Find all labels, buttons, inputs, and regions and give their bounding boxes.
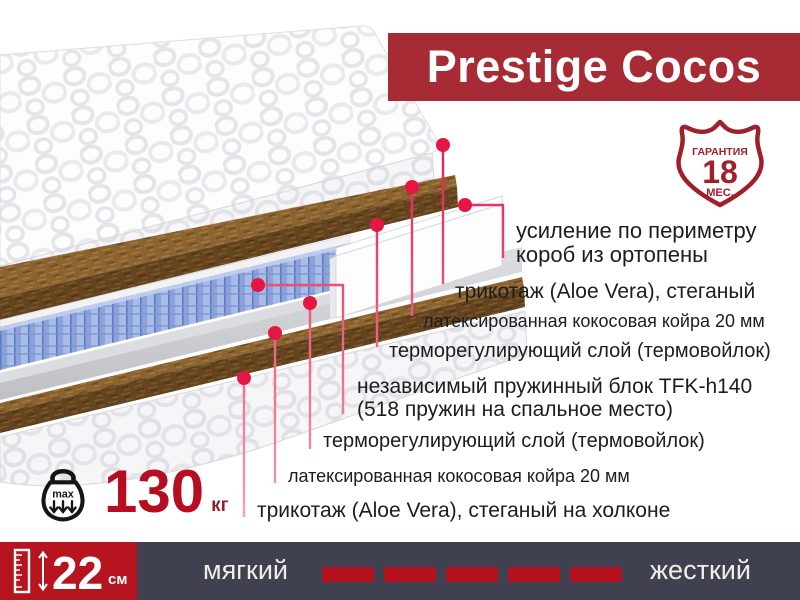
firmness-block [508,567,560,582]
annotation-coir-bottom: латексированная кокосовая койра 20 мм [288,466,630,487]
annotation-coir-top: латексированная кокосовая койра 20 мм [423,311,765,332]
firmness-scale [322,567,632,585]
annotation-felt-1: терморегулирующий слой (термовойлок) [389,340,771,363]
firmness-block [384,567,436,582]
infographic: Prestige Cocos ГАРАНТИЯ 18 МЕС. усиление… [0,0,800,600]
bottom-bar: 22 см мягкий жесткий [0,542,800,600]
annotation-springs: независимый пружинный блок TFK-h140 (518… [357,375,752,421]
max-load-unit: кг [211,495,228,517]
down-arrows-icon [50,501,75,512]
firmness-block [570,567,622,582]
max-load: max 130 кг [36,462,229,526]
firmness-block [322,567,374,582]
annotation-foam-box: усиление по периметру короб из ортопены [516,219,757,267]
title-banner: Prestige Cocos [388,33,800,101]
firmness-hard-label: жесткий [650,555,751,586]
badge-bottom-label: МЕС. [706,187,734,199]
annotation-bottom-cover: трикотаж (Aloe Vera), стеганый на холкон… [257,499,670,523]
firmness-soft-label: мягкий [203,555,288,586]
firmness-block [446,567,498,582]
kettlebell-icon: max [36,462,90,526]
height-panel: 22 см [0,542,137,600]
product-title: Prestige Cocos [427,41,762,93]
warranty-badge: ГАРАНТИЯ 18 МЕС. [674,115,766,211]
annotation-top-cover: трикотаж (Aloe Vera), стеганый [455,280,755,304]
height-unit: см [108,571,127,588]
annotation-felt-2: терморегулирующий слой (термовойлок) [323,430,705,453]
badge-number: 18 [702,154,738,190]
height-value: 22 [52,550,103,596]
max-load-value: 130 [104,462,204,522]
max-label: max [52,489,74,501]
ruler-icon [13,548,53,594]
